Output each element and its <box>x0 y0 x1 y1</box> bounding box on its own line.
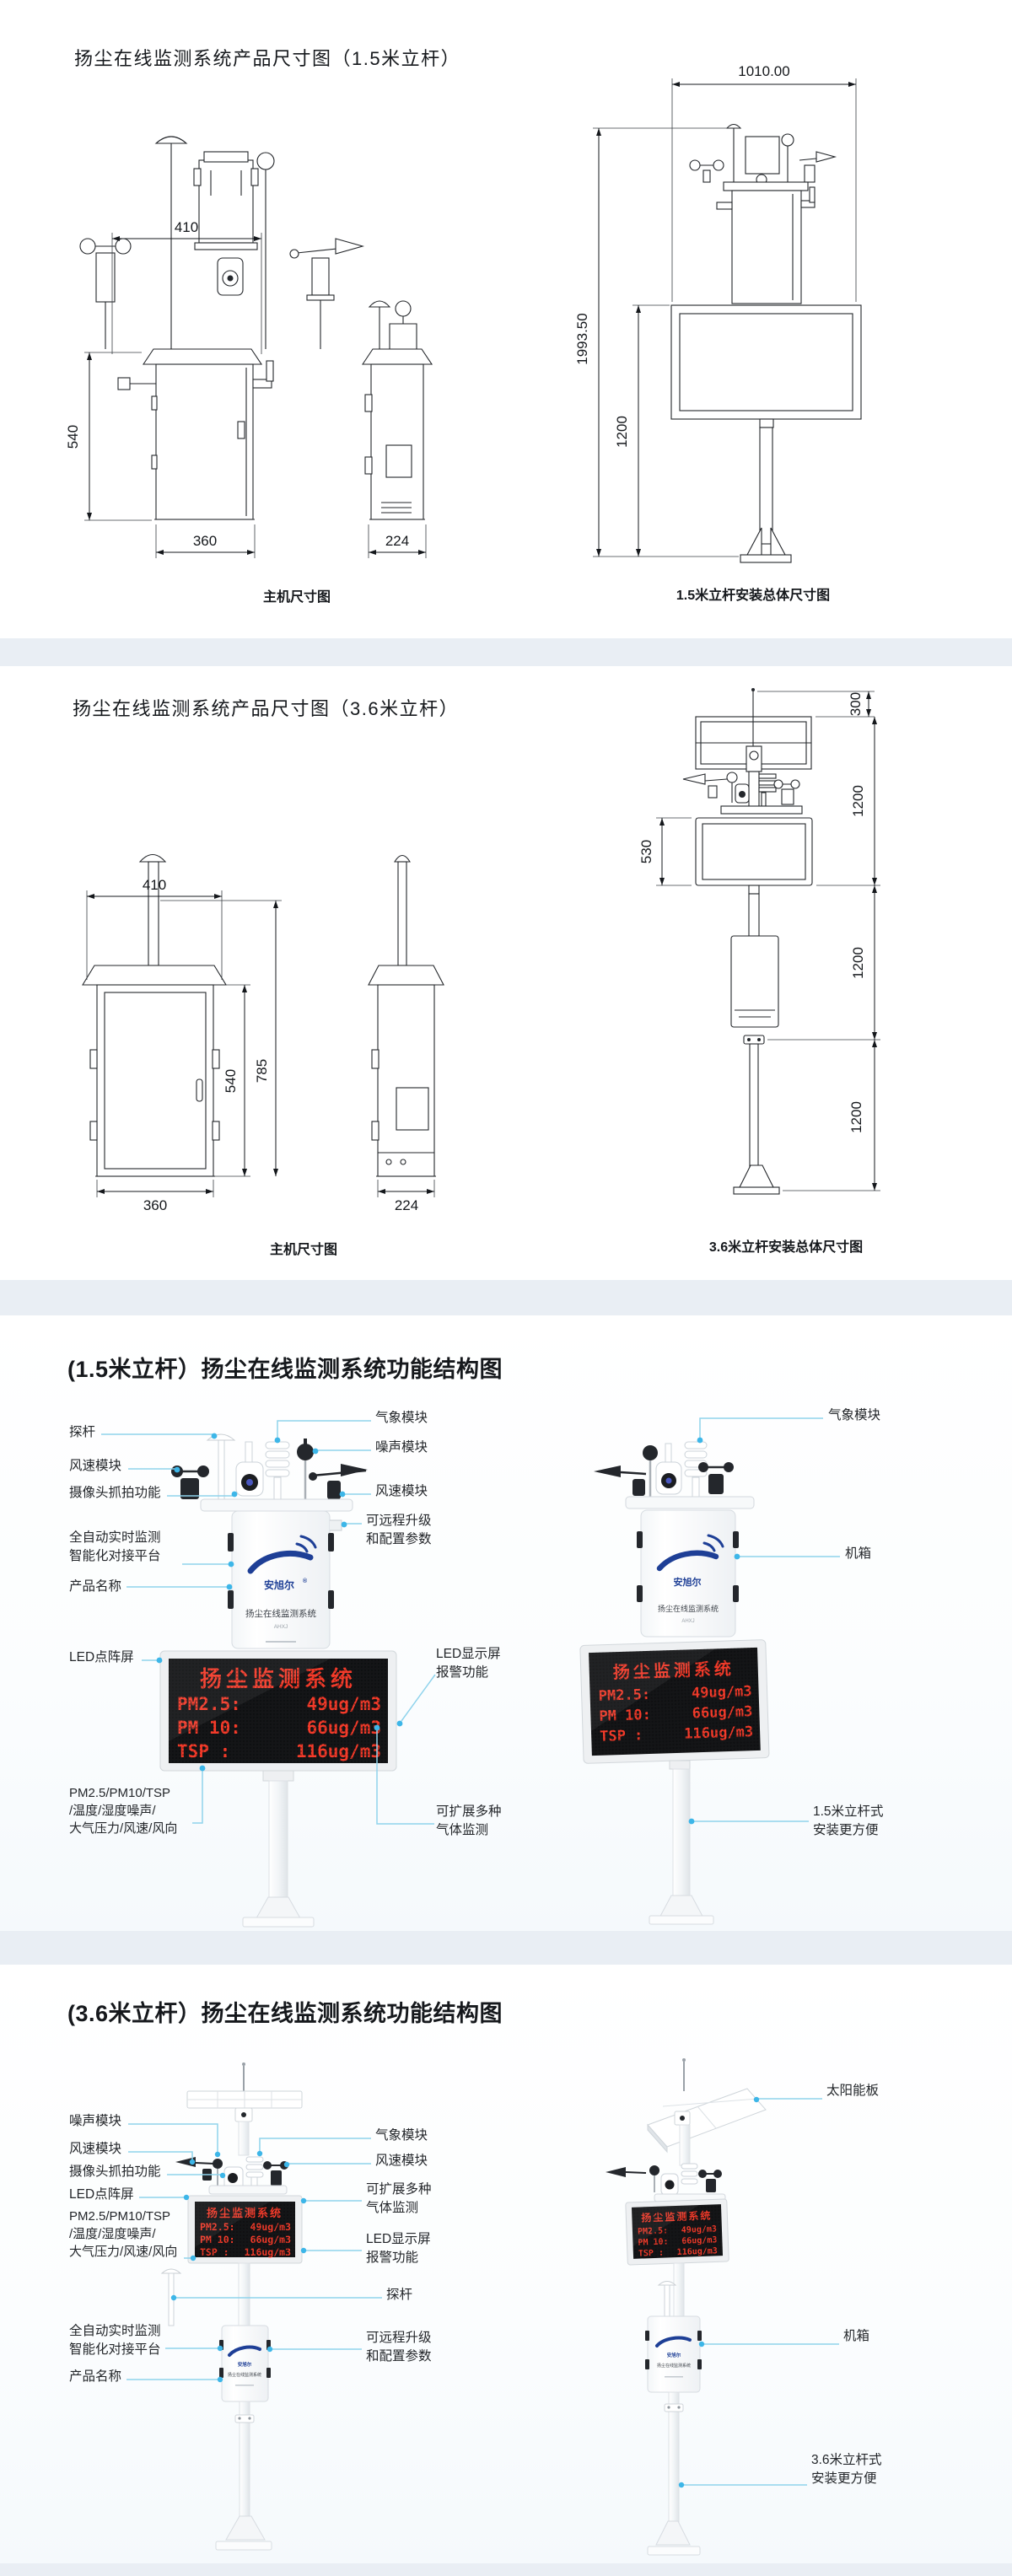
svg-text:360: 360 <box>193 533 217 549</box>
label-product-name: 产品名称 <box>69 1578 121 1596</box>
label-weather-module: 气象模块 <box>375 1409 428 1428</box>
label-wind-speed-module: 风速模块 <box>69 2140 121 2159</box>
label-wind-speed-module: 风速模块 <box>69 1457 121 1476</box>
svg-text:224: 224 <box>395 1197 418 1213</box>
svg-text:1010.00: 1010.00 <box>738 63 789 79</box>
dim-360: 360 <box>97 1180 213 1213</box>
label-probe: 探杆 <box>386 2286 412 2304</box>
camera-icon <box>218 258 243 295</box>
label-led-matrix-screen: LED点阵屏 <box>69 2186 134 2204</box>
device-front-1_5m: 安旭尔 ® 扬尘在线监测系统 AHXJ 扬尘监测系统 PM2.5: 49ug/m… <box>160 1434 396 1927</box>
svg-text:410: 410 <box>143 877 166 893</box>
label-camera-capture: 摄像头抓拍功能 <box>69 1484 161 1503</box>
svg-text:安旭尔: 安旭尔 <box>238 2361 252 2368</box>
callout-lines <box>126 2097 839 2487</box>
dim-1200-top: 1200 <box>816 717 880 885</box>
camera <box>656 1444 681 1494</box>
pole <box>760 428 772 544</box>
svg-text:360: 360 <box>143 1197 167 1213</box>
divider-band-1 <box>0 638 1012 666</box>
cabinet-product-name: 扬尘在线监测系统 <box>245 1608 316 1619</box>
label-weather-module-right: 气象模块 <box>828 1406 880 1425</box>
sensor-platform <box>626 1497 754 1508</box>
divider-band-4 <box>0 2563 1012 2576</box>
svg-text:扬尘在线监测系统: 扬尘在线监测系统 <box>657 2363 691 2369</box>
front-view-drawing: 410 360 540 785 <box>83 855 282 1214</box>
caption-pole-3_6m: 3.6米立杆安装总体尺寸图 <box>676 1235 896 1256</box>
label-auto-monitoring-platform: 全自动实时监测 智能化对接平台 <box>69 2322 161 2358</box>
label-wind-speed-module-2: 风速模块 <box>375 2152 428 2170</box>
side-view-drawing: 224 <box>369 856 444 1214</box>
pole-view-drawing: 1010.00 1993.50 1200 <box>574 63 861 562</box>
cabinet: 安旭尔 扬尘在线监测系统 <box>219 2326 271 2401</box>
label-noise-module: 噪声模块 <box>69 2112 121 2131</box>
left-pipe <box>118 378 130 390</box>
svg-text:530: 530 <box>638 840 654 863</box>
dim-224: 224 <box>378 1180 434 1213</box>
label-weather-module: 气象模块 <box>375 2127 428 2145</box>
solar-panel <box>648 2089 766 2152</box>
sensor-row <box>606 2164 725 2202</box>
label-led-matrix-screen: LED点阵屏 <box>69 1648 134 1667</box>
label-enclosure: 机箱 <box>845 1545 871 1563</box>
noise-sensor <box>297 1439 314 1499</box>
label-noise-module: 噪声模块 <box>375 1439 428 1457</box>
sensor-row-drawing <box>683 772 802 814</box>
label-solar-panel: 太阳能板 <box>826 2082 879 2100</box>
page: 扬尘在线监测系统产品尺寸图（1.5米立杆） <box>0 0 1012 2576</box>
dim-1200-mid: 1200 <box>767 885 880 1040</box>
dim-224: 224 <box>369 524 426 558</box>
dim-1200-bottom: 1200 <box>783 1040 880 1191</box>
led-screen: 扬尘监测系统 PM2.5: 49ug/m3 PM 10: 66ug/m3 TSP… <box>160 1651 396 1771</box>
pole-view-drawing: 300 530 1200 1200 <box>638 688 880 1194</box>
led-screen-drawing <box>696 818 812 885</box>
svg-text:785: 785 <box>254 1059 270 1083</box>
label-expandable-gas: 可扩展多种 气体监测 <box>366 2181 432 2217</box>
svg-text:1200: 1200 <box>614 416 630 448</box>
sensor-platform <box>201 1499 353 1511</box>
dim-540: 540 <box>65 352 152 520</box>
label-measured-parameters: PM2.5/PM10/TSP /温度/湿度噪声/ 大气压力/风速/风向 <box>69 1784 177 1837</box>
svg-text:安旭尔: 安旭尔 <box>674 1576 702 1588</box>
label-expandable-gas: 可扩展多种 气体监测 <box>436 1803 502 1839</box>
anemometer-icon <box>80 239 131 349</box>
display-board <box>671 305 861 419</box>
dim-300: 300 <box>757 691 875 717</box>
base-plate <box>648 2546 700 2555</box>
svg-text:1200: 1200 <box>850 947 866 979</box>
svg-text:300: 300 <box>848 692 864 716</box>
svg-text:1200: 1200 <box>850 785 866 817</box>
pole <box>673 1769 690 1896</box>
base-plate <box>243 1917 314 1927</box>
device-angled-1_5m: 安旭尔 扬尘在线监测系统 AHXJ 扬尘监测系统 PM2.5: 49ug/m3 … <box>580 1442 769 1924</box>
sensor-probe-icon <box>156 137 186 349</box>
pole <box>669 2392 679 2538</box>
caption-main-unit: 主机尺寸图 <box>219 1238 388 1258</box>
device-front-3_6m: 扬尘监测系统 PM2.5: 49ug/m3 PM 10: 66ug/m3 TSP… <box>162 2062 302 2550</box>
base-plate <box>216 2541 272 2550</box>
noise-sensor-icon <box>257 153 274 349</box>
svg-text:1993.50: 1993.50 <box>574 313 590 364</box>
weather-louver-sensor <box>266 1442 289 1499</box>
caption-pole-1_5m: 1.5米立杆安装总体尺寸图 <box>643 583 863 604</box>
svg-text:540: 540 <box>223 1069 239 1093</box>
section-structure-1_5m: (1.5米立杆）扬尘在线监测系统功能结构图 <box>0 1315 1012 1931</box>
cabinet-model: AHXJ <box>274 1624 288 1630</box>
label-probe: 探杆 <box>69 1423 95 1442</box>
camera <box>236 1442 263 1496</box>
cabinet-front <box>156 364 253 519</box>
device-angled-3_6m: 扬尘监测系统 PM2.5: 49ug/m3 PM 10: 66ug/m3 TSP… <box>606 2058 766 2555</box>
wind-vane-icon <box>290 239 363 349</box>
svg-text:扬尘在线监测系统: 扬尘在线监测系统 <box>658 1604 719 1613</box>
caption-main-unit: 主机尺寸图 <box>213 585 381 605</box>
led-screen: 扬尘监测系统 PM2.5: 49ug/m3 PM 10: 66ug/m3 TSP… <box>580 1640 769 1764</box>
label-wind-speed-module-2: 风速模块 <box>375 1482 428 1501</box>
section-dim-1_5m: 扬尘在线监测系统产品尺寸图（1.5米立杆） <box>0 0 1012 638</box>
svg-text:扬尘在线监测系统: 扬尘在线监测系统 <box>228 2372 261 2378</box>
cabinet-drawing <box>731 936 778 1027</box>
svg-text:410: 410 <box>175 219 198 235</box>
label-led-display-alarm: LED显示屏 报警功能 <box>366 2230 431 2267</box>
svg-text:1200: 1200 <box>848 1101 864 1133</box>
dimension-drawing-3_6m: 410 360 540 785 <box>0 666 1012 1280</box>
anemometer <box>698 1462 734 1494</box>
svg-text:®: ® <box>303 1578 308 1584</box>
front-view-drawing: 410 540 360 <box>65 137 363 558</box>
sensor-probe <box>207 1434 234 1501</box>
side-pipe <box>330 1520 342 1530</box>
dim-1200: 1200 <box>614 305 670 557</box>
svg-text:224: 224 <box>385 533 409 549</box>
label-measured-parameters: PM2.5/PM10/TSP /温度/湿度噪声/ 大气压力/风速/风向 <box>69 2208 177 2261</box>
label-auto-monitoring-platform: 全自动实时监测 智能化对接平台 <box>69 1529 161 1565</box>
label-pole-install-1_5m: 1.5米立杆式 安装更方便 <box>813 1803 884 1839</box>
svg-text:安旭尔: 安旭尔 <box>667 2352 681 2358</box>
pm-sampler-icon <box>194 152 258 250</box>
label-remote-upgrade: 可远程升级 和配置参数 <box>366 1512 432 1548</box>
label-pole-install-3_6m: 3.6米立杆式 安装更方便 <box>811 2451 882 2487</box>
section-dim-3_6m: 扬尘在线监测系统产品尺寸图（3.6米立杆） <box>0 666 1012 1280</box>
label-led-display-alarm: LED显示屏 报警功能 <box>436 1645 501 1681</box>
solar-panel <box>187 2091 302 2122</box>
led-screen: 扬尘监测系统 PM2.5: 49ug/m3 PM 10: 66ug/m3 TSP… <box>188 2196 302 2263</box>
roof <box>143 349 261 364</box>
wind-vane <box>594 1465 646 1496</box>
svg-text:540: 540 <box>65 425 81 449</box>
cabinet: 安旭尔 扬尘在线监测系统 <box>645 2316 702 2392</box>
dim-360: 360 <box>156 524 255 558</box>
side-view-drawing: 224 <box>363 301 432 558</box>
label-camera-capture: 摄像头抓拍功能 <box>69 2163 161 2181</box>
led-screen: 扬尘监测系统 PM2.5: 49ug/m3 PM 10: 66ug/m3 TSP… <box>626 2199 729 2265</box>
cabinet <box>641 1510 735 1637</box>
label-product-name: 产品名称 <box>69 2368 121 2386</box>
svg-text:AHXJ: AHXJ <box>681 1619 694 1624</box>
dim-540: 540 <box>215 985 250 1176</box>
pole <box>269 1781 288 1897</box>
label-remote-upgrade: 可远程升级 和配置参数 <box>366 2329 432 2365</box>
section-structure-3_6m: (3.6米立杆）扬尘在线监测系统功能结构图 <box>0 1965 1012 2563</box>
divider-band-2 <box>0 1280 1012 1315</box>
svg-text:安旭尔: 安旭尔 <box>264 1578 294 1591</box>
base-plate <box>649 1916 713 1924</box>
dimension-drawing-1_5m: 410 540 360 <box>0 0 1012 638</box>
label-enclosure: 机箱 <box>843 2327 869 2346</box>
dim-530: 530 <box>638 818 692 885</box>
divider-band-3 <box>0 1931 1012 1965</box>
